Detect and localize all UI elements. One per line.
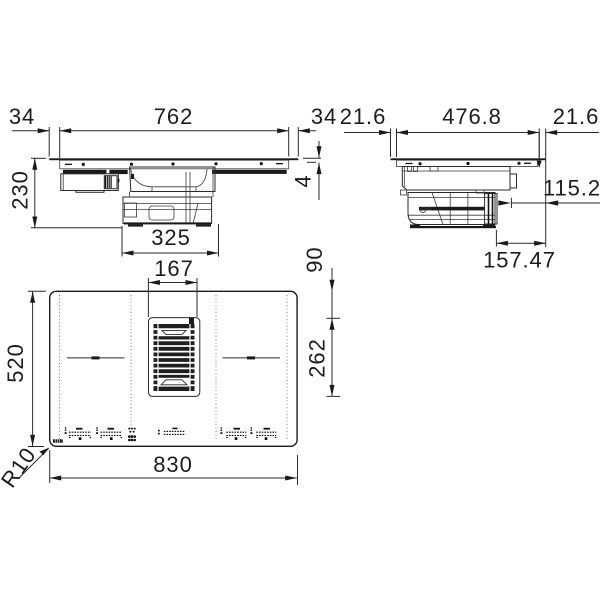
svg-text:34: 34 <box>311 104 337 129</box>
svg-text:262: 262 <box>305 338 330 377</box>
svg-text:21.6: 21.6 <box>340 104 386 129</box>
svg-text:830: 830 <box>153 452 192 477</box>
svg-text:4: 4 <box>291 174 316 187</box>
svg-text:325: 325 <box>151 225 190 250</box>
svg-text:230: 230 <box>8 170 33 209</box>
svg-text:157.47: 157.47 <box>483 248 556 273</box>
svg-text:762: 762 <box>154 104 193 129</box>
svg-text:520: 520 <box>3 343 28 382</box>
svg-text:21.6: 21.6 <box>553 104 599 129</box>
svg-text:115.2: 115.2 <box>543 176 600 201</box>
svg-text:167: 167 <box>154 256 193 281</box>
svg-text:34: 34 <box>9 104 35 129</box>
svg-text:90: 90 <box>302 246 327 272</box>
svg-text:476.8: 476.8 <box>442 104 502 129</box>
